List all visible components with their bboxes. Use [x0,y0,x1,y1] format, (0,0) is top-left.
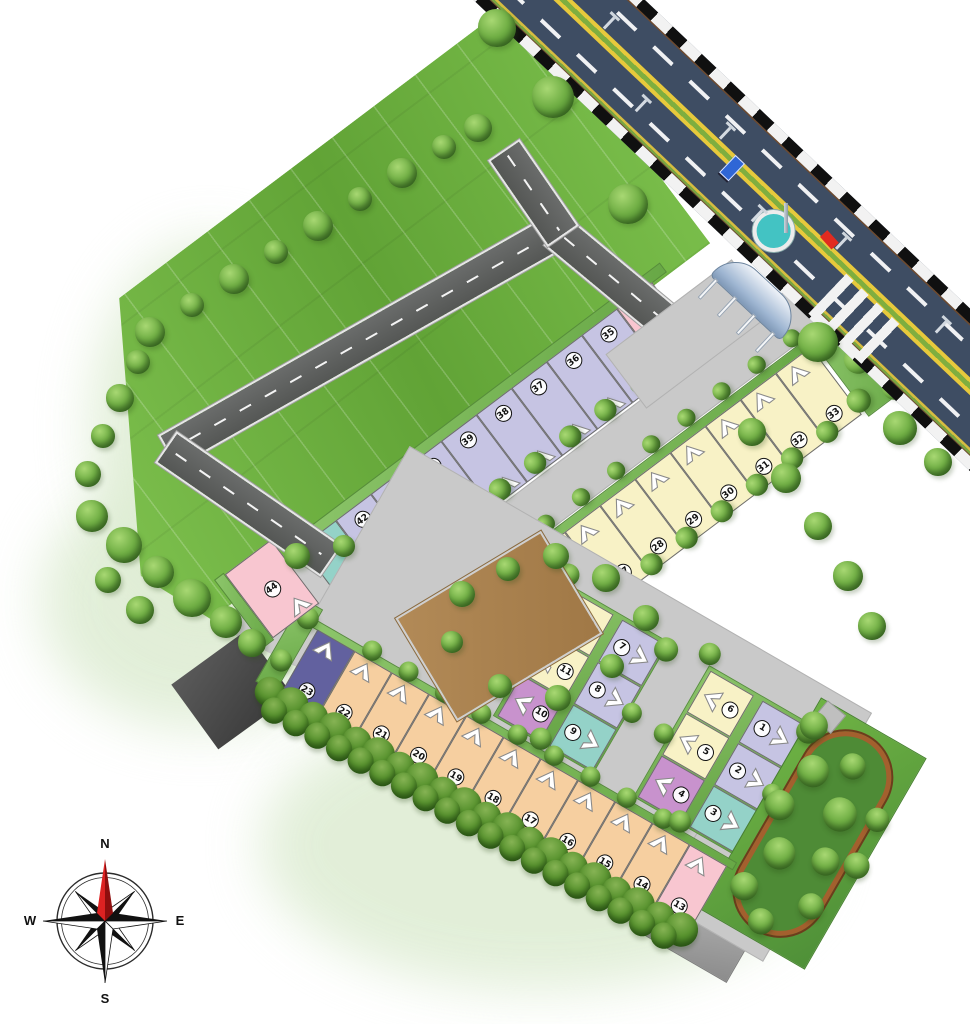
tree-icon [210,606,242,638]
tree-icon [532,76,574,118]
tree-icon [858,612,886,640]
tree-icon [106,527,142,563]
plot-number: 4 [670,783,693,806]
plot-number: 37 [526,375,550,399]
gate-post [736,314,757,336]
tree-icon [449,581,475,607]
plot-number: 1 [751,717,774,740]
fountain-pillar [784,203,788,233]
compass-label-north: N [100,836,109,851]
plot-number: 11 [554,659,577,682]
compass-cardinal-points [43,859,167,983]
plot-number: 35 [597,322,621,346]
tree-icon [126,350,150,374]
plot-number: 8 [586,678,609,701]
tree-icon [135,317,165,347]
tree-icon [633,605,659,631]
gate-post [755,331,776,353]
tree-icon [833,561,863,591]
compass-label-west: W [24,913,37,928]
tree-icon [106,384,134,412]
tree-icon [348,187,372,211]
plot-number: 2 [726,759,749,782]
compass-label-south: S [101,991,110,1006]
plot-number: 39 [456,428,480,452]
street-light-icon [635,99,647,112]
gate-post [698,278,719,300]
tree-icon [543,543,569,569]
plot-number: 6 [719,698,742,721]
plot-number: 44 [260,577,284,601]
plot-number: 38 [491,402,515,426]
tree-icon [496,557,520,581]
tree-icon [432,135,456,159]
tree-icon [91,424,115,448]
tree-icon [264,240,288,264]
tree-icon [478,9,516,47]
tree-icon [173,579,211,617]
tree-icon [488,674,512,698]
tree-icon [441,631,463,653]
tree-icon [883,411,917,445]
tree-icon [798,322,838,362]
tree-icon [126,596,154,624]
tree-icon [592,564,620,592]
tree-icon [219,264,249,294]
tree-icon [75,461,101,487]
villa-icon [579,728,607,758]
tree-icon [76,500,108,532]
plot-number: 3 [702,801,725,824]
tree-icon [545,685,571,711]
gate-post [717,296,738,318]
tree-icon [333,535,355,557]
street-light-icon [603,17,615,30]
tree-icon [303,211,333,241]
tree-icon [608,184,648,224]
site-plan-canvas: 43424140393837363534 2425262728293031323… [0,0,970,1024]
tree-icon [771,463,801,493]
north-needle [105,859,113,921]
compass-rose: N E S W [20,822,190,1012]
tree-icon [95,567,121,593]
street-light-icon [935,321,947,334]
tree-icon [738,418,766,446]
tree-icon [142,556,174,588]
tree-icon [464,114,492,142]
plot-number: 36 [562,349,586,373]
tree-icon [804,512,832,540]
tree-icon [387,158,417,188]
street-light-icon [719,127,731,140]
compass-label-east: E [176,913,185,928]
tree-icon [924,448,952,476]
tree-icon [180,293,204,317]
villa-icon [628,643,656,673]
tree-icon [600,654,624,678]
north-needle [97,859,105,921]
tree-icon [284,543,310,569]
tree-icon [238,629,266,657]
plot-number: 5 [694,740,717,763]
plot-number: 9 [561,720,584,743]
